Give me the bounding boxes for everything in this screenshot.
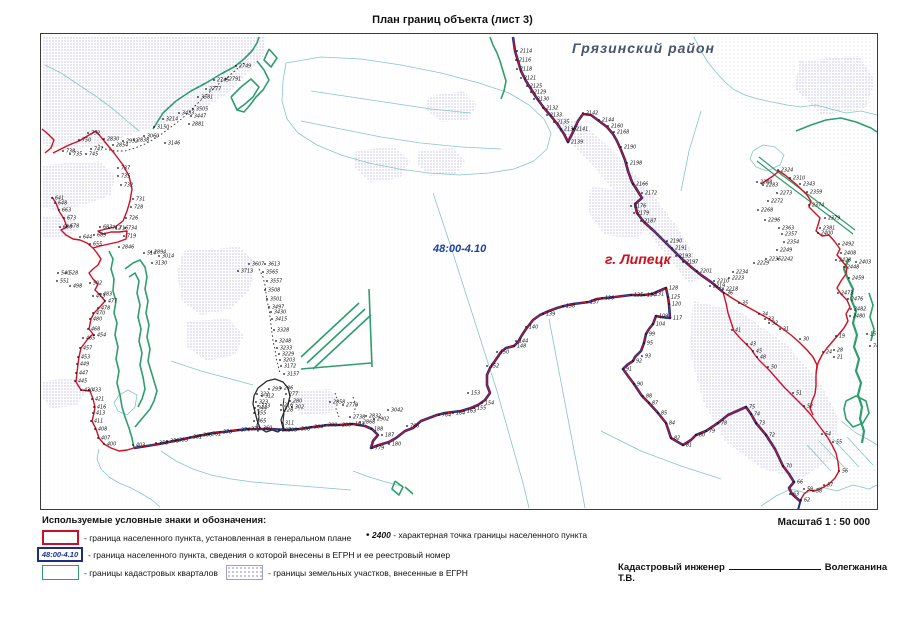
boundary-point-dot <box>88 389 90 391</box>
boundary-point-dot <box>381 434 383 436</box>
boundary-point-dot <box>87 132 89 134</box>
boundary-point-dot <box>108 227 110 229</box>
boundary-point-dot <box>792 392 794 394</box>
boundary-point-number: 716 <box>119 226 128 232</box>
boundary-point-dot <box>586 301 588 303</box>
legend-swatch-land-parcels <box>226 565 263 580</box>
boundary-point-dot <box>823 484 825 486</box>
boundary-point-number: 2166 <box>636 182 648 188</box>
boundary-point-number: 2114 <box>520 49 532 55</box>
boundary-point-dot <box>438 414 440 416</box>
boundary-point-number: 2379 <box>828 216 840 222</box>
boundary-point-dot <box>190 115 192 117</box>
boundary-point-number: 2242 <box>781 257 793 263</box>
boundary-point-number: 400 <box>107 442 116 448</box>
boundary-point-number: 2400 <box>821 231 833 237</box>
boundary-point-number: 663 <box>62 208 71 214</box>
boundary-point-dot <box>655 315 657 317</box>
boundary-point-number: 689 <box>97 233 106 239</box>
boundary-point-dot <box>166 440 168 442</box>
boundary-point-number: 477 <box>108 299 117 305</box>
boundary-point-number: 2296 <box>768 218 780 224</box>
boundary-point-dot <box>281 422 283 424</box>
boundary-point-dot <box>85 153 87 155</box>
boundary-point-dot <box>270 311 272 313</box>
boundary-point-dot <box>99 226 101 228</box>
boundary-point-dot <box>817 232 819 234</box>
boundary-point-number: 81 <box>686 443 692 449</box>
boundary-point-dot <box>93 234 95 236</box>
boundary-point-dot <box>280 365 282 367</box>
boundary-point-number: 85 <box>661 411 667 417</box>
boundary-point-dot <box>205 88 207 90</box>
boundary-point-dot <box>665 422 667 424</box>
boundary-point-dot <box>767 200 769 202</box>
boundary-point-number: 55 <box>836 440 842 446</box>
boundary-point-number: 473 <box>96 294 105 300</box>
boundary-point-number: 374 <box>241 428 250 434</box>
boundary-point-dot <box>261 395 263 397</box>
boundary-point-dot <box>640 220 642 222</box>
boundary-point-dot <box>262 271 264 273</box>
boundary-point-dot <box>264 263 266 265</box>
boundary-point-dot <box>626 162 628 164</box>
boundary-point-dot <box>80 389 82 391</box>
boundary-point-number: 3581 <box>201 95 213 101</box>
boundary-point-dot <box>572 128 574 130</box>
boundary-point-number: 66 <box>797 480 803 486</box>
boundary-point-dot <box>642 395 644 397</box>
boundary-point-number: 136 <box>605 296 614 302</box>
boundary-point-number: 2116 <box>519 58 531 64</box>
boundary-point-dot <box>59 226 61 228</box>
boundary-point-number: 2408 <box>844 251 856 257</box>
boundary-point-number: 745 <box>89 152 98 158</box>
boundary-point-dot <box>112 144 114 146</box>
boundary-point-dot <box>633 383 635 385</box>
boundary-point-dot <box>732 271 734 273</box>
boundary-point-dot <box>103 443 105 445</box>
boundary-point-number: 135 <box>634 293 643 299</box>
boundary-point-number: 454 <box>97 333 106 339</box>
boundary-point-number: 2749 <box>239 64 251 70</box>
boundary-point-dot <box>799 338 801 340</box>
boundary-point-number: 3565 <box>266 270 278 276</box>
boundary-point-number: 139 <box>546 312 555 318</box>
boundary-point-number: 3415 <box>275 317 287 323</box>
boundary-point-number: 2403 <box>859 260 871 266</box>
boundary-point-number: 2448 <box>847 265 859 271</box>
boundary-point-dot <box>90 420 92 422</box>
boundary-point-number: 3248 <box>279 339 291 345</box>
boundary-point-dot <box>213 79 215 81</box>
boundary-point-dot <box>832 441 834 443</box>
boundary-point-number: 433 <box>92 388 101 394</box>
boundary-point-dot <box>342 404 344 406</box>
boundary-point-number: 2118 <box>520 67 532 73</box>
boundary-point-dot <box>279 359 281 361</box>
boundary-point-dot <box>387 409 389 411</box>
boundary-point-number: 2130 <box>537 97 549 103</box>
boundary-point-number: 2830 <box>107 137 119 143</box>
boundary-point-dot <box>546 114 548 116</box>
boundary-point-dot <box>668 303 670 305</box>
boundary-point-dot <box>840 252 842 254</box>
boundary-point-dot <box>406 425 408 427</box>
boundary-point-dot <box>150 251 152 253</box>
boundary-point-dot <box>562 305 564 307</box>
boundary-point-dot <box>641 192 643 194</box>
boundary-point-number: 2235 <box>769 257 781 263</box>
boundary-point-dot <box>463 410 465 412</box>
boundary-point-dot <box>516 50 518 52</box>
boundary-point-dot <box>525 326 527 328</box>
boundary-point-dot <box>696 270 698 272</box>
boundary-point-dot <box>197 96 199 98</box>
boundary-point-dot <box>855 261 857 263</box>
boundary-point-dot <box>838 243 840 245</box>
boundary-point-number: 104 <box>656 322 665 328</box>
boundary-point-dot <box>178 112 180 114</box>
boundary-point-number: 304 <box>314 425 323 431</box>
boundary-point-dot <box>276 347 278 349</box>
boundary-point-number: 131 <box>655 292 664 298</box>
boundary-point-number: 300 <box>328 423 337 429</box>
boundary-point-number: 408 <box>98 427 107 433</box>
boundary-point-dot <box>130 206 132 208</box>
boundary-point-number: 79 <box>709 429 715 435</box>
boundary-point-number: 2838 <box>137 138 149 144</box>
boundary-point-dot <box>757 209 759 211</box>
boundary-point-dot <box>373 418 375 420</box>
boundary-point-dot <box>713 280 715 282</box>
boundary-point-dot <box>125 217 127 219</box>
boundary-point-number: 80 <box>699 433 705 439</box>
boundary-point-number: 411 <box>94 419 103 425</box>
boundary-point-number: 3613 <box>268 262 280 268</box>
boundary-point-dot <box>753 262 755 264</box>
boundary-point-dot <box>758 313 760 315</box>
legend-heading: Используемые условные знаки и обозначени… <box>42 515 266 526</box>
boundary-point-dot <box>247 428 249 430</box>
boundary-point-number: 31 <box>783 327 789 333</box>
boundary-point-dot <box>268 388 270 390</box>
boundary-point-dot <box>237 429 239 431</box>
boundary-point-number: 2868 <box>363 420 375 426</box>
boundary-point-dot <box>153 126 155 128</box>
boundary-point-dot <box>94 428 96 430</box>
boundary-point-number: 3150 <box>157 125 169 131</box>
signature-line <box>729 559 821 570</box>
boundary-point-number: 70 <box>786 464 792 470</box>
boundary-point-dot <box>58 209 60 211</box>
boundary-point-dot <box>188 123 190 125</box>
engineer-signature-row: Кадастровый инженерВолегжанина Т.В. <box>618 559 905 584</box>
boundary-point-number: 125 <box>671 295 680 301</box>
boundary-point-dot <box>297 428 299 430</box>
boundary-point-number: 2492 <box>842 242 854 248</box>
boundary-point-dot <box>324 424 326 426</box>
boundary-point-dot <box>275 340 277 342</box>
boundary-point-number: 644 <box>83 235 92 241</box>
boundary-point-dot <box>92 412 94 414</box>
boundary-point-dot <box>69 285 71 287</box>
scale-label: Масштаб 1 : 50 000 <box>758 517 870 528</box>
boundary-point-dot <box>764 219 766 221</box>
boundary-point-number: 32 <box>772 321 778 327</box>
boundary-point-dot <box>278 353 280 355</box>
boundary-point-number: 648 <box>58 201 67 207</box>
boundary-point-dot <box>869 345 871 347</box>
boundary-point-number: 48 <box>760 355 766 361</box>
boundary-point-dot <box>255 401 257 403</box>
boundary-point-number: 277 <box>289 392 298 398</box>
boundary-point-dot <box>82 337 84 339</box>
boundary-point-dot <box>520 77 522 79</box>
boundary-point-number: 73 <box>759 421 765 427</box>
boundary-point-dot <box>289 400 291 402</box>
boundary-point-number: 74 <box>873 344 877 350</box>
boundary-point-number: 2121 <box>524 76 536 82</box>
boundary-point-dot <box>738 302 740 304</box>
boundary-point-number: 2745 <box>217 78 229 84</box>
boundary-point-dot <box>553 121 555 123</box>
boundary-point-number: 2201 <box>700 269 712 275</box>
boundary-point-number: 188 <box>374 427 383 433</box>
boundary-point-dot <box>750 413 752 415</box>
boundary-point-dot <box>155 442 157 444</box>
boundary-point-dot <box>526 85 528 87</box>
boundary-point-number: 200 <box>342 423 351 429</box>
boundary-point-dot <box>513 345 515 347</box>
boundary-point-dot <box>151 262 153 264</box>
boundary-point-number: 59 <box>807 487 813 493</box>
boundary-point-number: 3557 <box>270 279 282 285</box>
boundary-point-dot <box>266 280 268 282</box>
boundary-point-number: 2374 <box>812 203 824 209</box>
point-marker-number: 2400 <box>372 530 391 540</box>
boundary-point-number: 109 <box>659 314 668 320</box>
boundary-point-number: 3447 <box>194 114 206 120</box>
boundary-point-number: 87 <box>652 401 658 407</box>
boundary-point-number: 91 <box>626 367 632 373</box>
boundary-point-number: 355 <box>170 439 179 445</box>
boundary-point-dot <box>671 247 673 249</box>
boundary-point-number: 2133 <box>550 113 562 119</box>
boundary-point-number: 92 <box>636 359 642 365</box>
boundary-point-number: 480 <box>93 317 102 323</box>
boundary-point-dot <box>280 409 282 411</box>
boundary-point-dot <box>657 412 659 414</box>
boundary-point-dot <box>598 119 600 121</box>
boundary-point-dot <box>118 246 120 248</box>
boundary-point-number: 3501 <box>270 297 282 303</box>
boundary-point-dot <box>652 323 654 325</box>
boundary-point-number: 372 <box>251 427 260 433</box>
boundary-point-number: 2846 <box>122 245 134 251</box>
engineer-label: Кадастровый инженер <box>618 562 725 573</box>
legend-swatch-cadastral-quarters <box>42 565 79 580</box>
boundary-point-number: 63 <box>793 492 799 498</box>
boundary-point-dot <box>643 294 645 296</box>
boundary-point-number: 72 <box>769 433 775 439</box>
boundary-point-dot <box>762 184 764 186</box>
boundary-point-dot <box>481 402 483 404</box>
boundary-point-dot <box>162 118 164 120</box>
boundary-point-dot <box>731 329 733 331</box>
boundary-point-dot <box>486 365 488 367</box>
legend-swatch-genplan-boundary <box>42 530 79 545</box>
legend-item-cadastral-quarters: - границы кадастровых кварталов <box>84 568 218 578</box>
boundary-point-number: 445 <box>78 379 87 385</box>
boundary-point-number: 731 <box>136 197 145 203</box>
boundary-point-dot <box>567 141 569 143</box>
boundary-point-dot <box>351 423 353 425</box>
boundary-point-dot <box>722 288 724 290</box>
boundary-point-dot <box>667 296 669 298</box>
boundary-point-dot <box>143 135 145 137</box>
boundary-point-number: 3328 <box>277 328 289 334</box>
boundary-point-number: 3713 <box>241 269 253 275</box>
legend-swatch-egrn-number: 48:00-4.10 <box>42 550 78 559</box>
boundary-point-dot <box>89 318 91 320</box>
boundary-point-number: 45 <box>756 349 762 355</box>
boundary-point-dot <box>63 217 65 219</box>
boundary-point-dot <box>256 393 258 395</box>
boundary-point-number: 311 <box>285 421 294 427</box>
boundary-point-dot <box>560 128 562 130</box>
boundary-point-number: 56 <box>842 469 848 475</box>
boundary-point-dot <box>803 488 805 490</box>
boundary-point-number: 2198 <box>630 161 642 167</box>
boundary-point-number: 2139 <box>571 140 583 146</box>
boundary-point-dot <box>847 298 849 300</box>
boundary-point-number: 735 <box>121 174 130 180</box>
boundary-point-dot <box>175 439 177 441</box>
boundary-point-dot <box>789 493 791 495</box>
boundary-point-number: 2476 <box>851 297 863 303</box>
boundary-point-number: 2272 <box>771 199 783 205</box>
boundary-point-dot <box>51 197 53 199</box>
boundary-point-number: 2142 <box>586 111 598 117</box>
boundary-point-number: 528 <box>69 271 78 277</box>
boundary-point-dot <box>496 351 498 353</box>
boundary-point-number: 90 <box>637 382 643 388</box>
boundary-point-number: 3130 <box>155 261 167 267</box>
boundary-point-dot <box>783 241 785 243</box>
boundary-point-dot <box>778 227 780 229</box>
boundary-point-number: 3203 <box>283 358 295 364</box>
boundary-point-number: 655 <box>93 242 102 248</box>
boundary-point-number: 2791 <box>229 77 241 83</box>
boundary-point-number: 2310 <box>793 176 805 182</box>
boundary-point-dot <box>124 227 126 229</box>
boundary-point-dot <box>669 317 671 319</box>
boundary-point-dot <box>779 328 781 330</box>
boundary-point-dot <box>237 270 239 272</box>
boundary-point-dot <box>365 415 367 417</box>
boundary-point-number: 306 <box>301 427 310 433</box>
boundary-point-number: 51 <box>796 391 802 397</box>
boundary-point-number: 78 <box>721 421 727 427</box>
boundary-point-dot <box>622 368 624 370</box>
boundary-point-dot <box>90 148 92 150</box>
boundary-point-dot <box>56 280 58 282</box>
boundary-point-number: 120 <box>672 302 681 308</box>
boundary-point-dot <box>799 183 801 185</box>
boundary-point-number: 41 <box>735 328 741 334</box>
boundary-point-dot <box>57 272 59 274</box>
boundary-point-number: 2354 <box>787 240 799 246</box>
boundary-point-number: 2283 <box>766 183 778 189</box>
boundary-point-dot <box>630 205 632 207</box>
boundary-point-dot <box>164 142 166 144</box>
boundary-point-number: 58 <box>816 489 822 495</box>
boundary-point-dot <box>601 297 603 299</box>
boundary-point-number: 728 <box>134 205 143 211</box>
boundary-point-dot <box>516 68 518 70</box>
boundary-point-number: 413 <box>96 411 105 417</box>
boundary-point-number: 673 <box>67 216 76 222</box>
boundary-point-dot <box>370 428 372 430</box>
boundary-point-dot <box>630 294 632 296</box>
boundary-point-number: 2187 <box>644 219 656 225</box>
boundary-point-dot <box>645 333 647 335</box>
boundary-point-number: 752 <box>91 131 100 137</box>
boundary-point-number: 2144 <box>602 118 614 124</box>
boundary-point-number: 3430 <box>274 310 286 316</box>
boundary-point-number: 302 <box>295 405 304 411</box>
boundary-point-dot <box>800 499 802 501</box>
boundary-point-number: 208 <box>282 428 291 434</box>
boundary-point-number: 333 <box>261 404 270 410</box>
boundary-point-dot <box>850 308 852 310</box>
boundary-point-dot <box>77 356 79 358</box>
map-layers: 2114211621182121212521292130213221332135… <box>41 34 877 509</box>
boundary-point-dot <box>89 282 91 284</box>
boundary-point-number: 403 <box>136 443 145 449</box>
point-marker-icon: • <box>366 530 370 541</box>
boundary-point-number: 19 <box>839 334 845 340</box>
boundary-point-number: 128 <box>669 286 678 292</box>
boundary-point-number: 15 <box>870 332 876 338</box>
boundary-point-number: 2777 <box>209 87 221 93</box>
boundary-point-dot <box>848 277 850 279</box>
boundary-point-number: 2482 <box>854 307 866 313</box>
boundary-point-number: 2363 <box>782 226 794 232</box>
point-marker-text: - характерная точка границы населенного … <box>393 530 587 540</box>
boundary-point-dot <box>78 139 80 141</box>
boundary-point-number: 2473 <box>841 291 853 297</box>
boundary-point-dot <box>843 266 845 268</box>
boundary-point-dot <box>682 261 684 263</box>
boundary-point-number: 117 <box>673 316 682 322</box>
boundary-point-number: 3042 <box>391 408 403 414</box>
boundary-point-dot <box>143 252 145 254</box>
boundary-point-number: 3214 <box>166 117 178 123</box>
boundary-point-dot <box>822 351 824 353</box>
boundary-point-dot <box>835 259 837 261</box>
boundary-point-dot <box>69 153 71 155</box>
boundary-point-number: 54 <box>825 432 831 438</box>
legend-swatch-egrn-boundary: 48:00-4.10 <box>37 547 83 562</box>
boundary-point-number: 3505 <box>196 107 208 113</box>
legend-item-land-parcels: - границы земельных участков, внесенные … <box>268 568 468 578</box>
city-label: г. Липецк <box>605 251 671 267</box>
boundary-point-number: 365 <box>257 419 266 425</box>
boundary-point-dot <box>682 444 684 446</box>
boundary-point-number: 737 <box>121 166 130 172</box>
